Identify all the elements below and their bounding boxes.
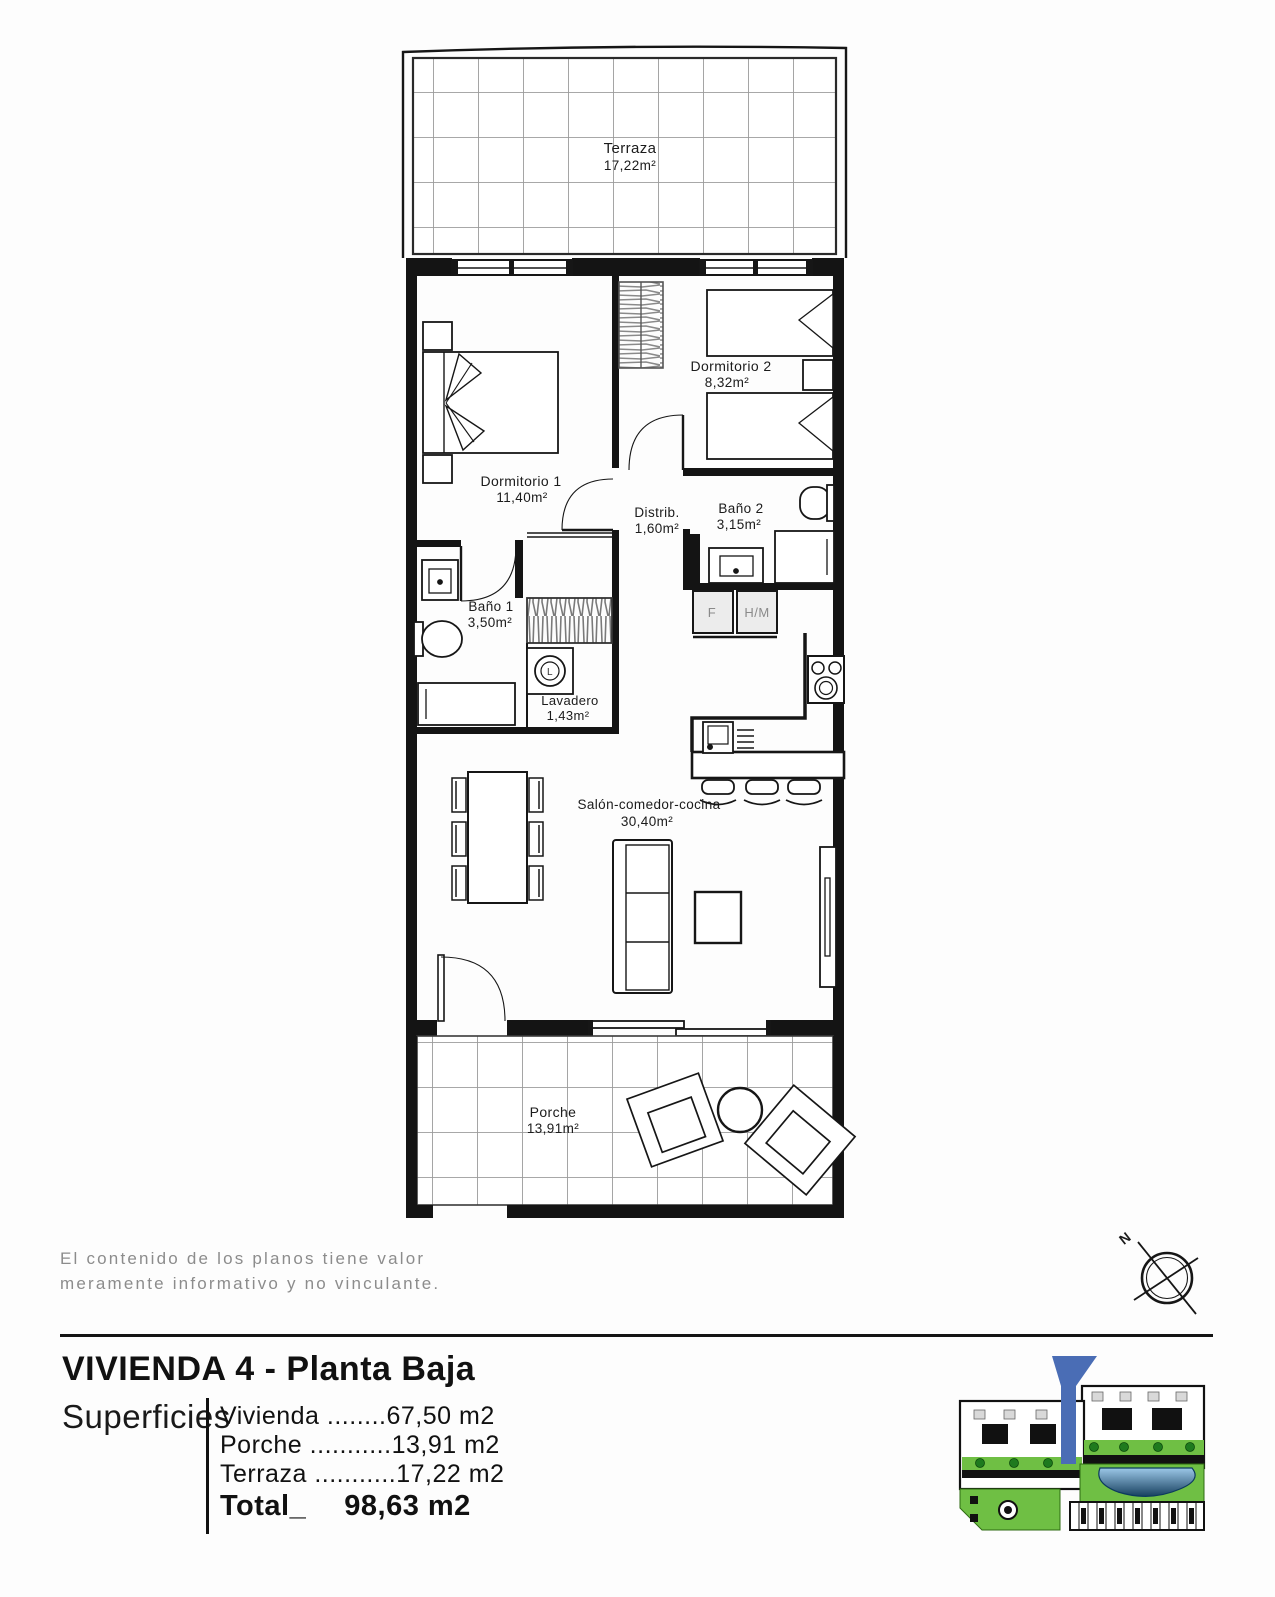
salon-area-label: 30,40m² — [621, 814, 673, 829]
double-bed — [423, 352, 558, 453]
surfaces-table: Vivienda ........67,50 m2 Porche .......… — [220, 1402, 504, 1489]
bano2-door-leaf — [690, 534, 700, 584]
dormitorio1-label: Dormitorio 1 — [480, 473, 561, 489]
surface-value: 17,22 m2 — [396, 1460, 504, 1488]
surface-row-terraza: Terraza ...........17,22 m2 — [220, 1460, 504, 1489]
lavadero-area-label: 1,43m² — [547, 708, 590, 723]
porche-label: Porche — [530, 1104, 577, 1120]
surface-leader: ........... — [314, 1460, 396, 1488]
bano2-fixtures — [709, 485, 834, 583]
wall-dorm1-right — [612, 276, 619, 468]
oven-microwave-label: H/M — [744, 605, 769, 620]
dormitorio1-furniture — [423, 322, 558, 483]
porche-area: Porche 13,91m² — [406, 1036, 855, 1218]
wall-dorm2-bottom — [683, 468, 833, 476]
bano2-area-label: 3,15m² — [717, 517, 762, 532]
tv — [825, 878, 830, 956]
round-table — [718, 1088, 762, 1132]
surface-leader: ........... — [310, 1431, 392, 1459]
site-parking — [1070, 1502, 1204, 1530]
chair — [452, 822, 466, 856]
disclaimer-text: El contenido de los planos tiene valor m… — [60, 1246, 440, 1296]
dormitorio1-area-label: 11,40m² — [496, 490, 547, 505]
nightstand — [803, 360, 833, 390]
bano2-label: Baño 2 — [718, 501, 763, 516]
site-plan-thumbnail — [960, 1356, 1204, 1530]
toilet — [800, 487, 830, 519]
wall-bano2-bottom — [683, 583, 833, 590]
wall-bottom-3 — [766, 1020, 833, 1036]
terraza-label: Terraza — [604, 140, 657, 157]
chair — [529, 778, 543, 812]
entrance-door — [438, 955, 505, 1021]
surface-value: 13,91 m2 — [392, 1431, 500, 1459]
dormitorio2-area-label: 8,32m² — [705, 375, 750, 390]
shower — [775, 531, 834, 583]
wall-bottom-2 — [507, 1020, 592, 1036]
chair — [529, 822, 543, 856]
sliding-door-porche — [588, 1020, 771, 1036]
surface-leader: ........ — [327, 1402, 387, 1430]
surface-label: Porche — [220, 1431, 310, 1459]
sofa — [613, 840, 672, 993]
closet-shelf-lines — [527, 533, 612, 537]
window-dormitorio1 — [452, 260, 572, 275]
wall-corridor-stub — [683, 529, 690, 589]
dormitorio2-label: Dormitorio 2 — [690, 358, 771, 374]
total-value: 98,63 m2 — [344, 1490, 471, 1522]
dining-table — [468, 772, 527, 903]
door-bano1 — [461, 546, 516, 601]
page-title: VIVIENDA 4 - Planta Baja — [62, 1350, 475, 1389]
wall-bano1-top — [414, 540, 461, 547]
surface-label: Vivienda — [220, 1402, 327, 1430]
wall-bottom-1 — [406, 1020, 437, 1036]
distribuidor-area-label: 1,60m² — [635, 521, 680, 536]
bathroom-cabinet — [418, 683, 515, 725]
surface-row-porche: Porche ...........13,91 m2 — [220, 1431, 504, 1460]
nightstand — [423, 322, 452, 350]
corridor-wardrobe — [527, 598, 612, 643]
hob — [808, 656, 844, 703]
lavadero-label: Lavadero — [541, 693, 598, 708]
kitchen-sink — [703, 722, 754, 753]
wall-bano1-bottom — [414, 727, 619, 734]
distribuidor-label: Distrib. — [634, 505, 679, 520]
door-dormitorio1 — [562, 479, 613, 530]
terraza-area-label: 17,22m² — [604, 158, 656, 173]
tv-unit — [820, 847, 836, 987]
surface-total-row: Total_98,63 m2 — [220, 1490, 471, 1523]
stool — [702, 780, 734, 794]
floorplan-page: Terraza 17,22m² — [0, 0, 1275, 1597]
door-dormitorio2 — [629, 415, 683, 470]
chair — [452, 778, 466, 812]
bano1-area-label: 3,50m² — [468, 615, 513, 630]
surface-row-vivienda: Vivienda ........67,50 m2 — [220, 1402, 504, 1431]
toilet-tank — [827, 485, 834, 521]
porche-area-label: 13,91m² — [527, 1121, 579, 1136]
surface-value: 67,50 m2 — [386, 1402, 494, 1430]
kitchen: F H/M — [692, 591, 844, 805]
compass-north-label: N — [1116, 1229, 1134, 1248]
chair — [452, 866, 466, 900]
divider-rule — [60, 1334, 1213, 1337]
fridge-label: F — [708, 605, 716, 620]
disclaimer-line2: meramente informativo y no vinculante. — [60, 1271, 440, 1296]
coffee-table — [695, 892, 741, 943]
wall-closet-right — [612, 530, 619, 729]
stool — [746, 780, 778, 794]
nightstand — [423, 455, 452, 483]
compass: N — [1116, 1229, 1198, 1314]
surface-label: Terraza — [220, 1460, 314, 1488]
wall-top-2 — [572, 258, 700, 276]
breakfast-bar — [692, 752, 844, 778]
total-label: Total_ — [220, 1490, 306, 1522]
terraza-area: Terraza 17,22m² — [403, 47, 846, 258]
stool — [788, 780, 820, 794]
surfaces-divider — [206, 1398, 209, 1534]
chair — [529, 866, 543, 900]
bano1-label: Baño 1 — [468, 599, 513, 614]
dining-set — [452, 772, 543, 903]
toilet — [422, 621, 462, 657]
disclaimer-line1: El contenido de los planos tiene valor — [60, 1246, 440, 1271]
site-garden-left — [960, 1489, 1060, 1530]
bano1-fixtures — [414, 560, 515, 725]
window-dormitorio2 — [700, 260, 812, 275]
washer-label: L — [547, 667, 553, 678]
salon-label: Salón-comedor-cocina — [577, 797, 720, 812]
